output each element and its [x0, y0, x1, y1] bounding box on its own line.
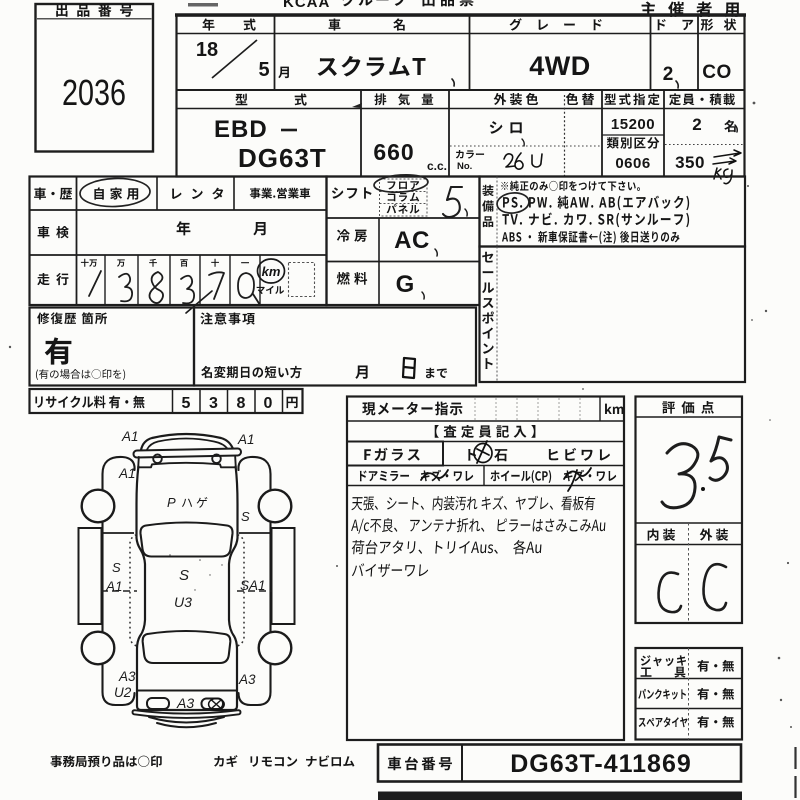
svg-text:G: G — [396, 271, 415, 298]
svg-text:S: S — [112, 560, 121, 575]
svg-text:A3: A3 — [238, 672, 256, 687]
svg-text:18: 18 — [196, 39, 218, 61]
svg-text:5: 5 — [258, 59, 269, 81]
svg-text:km: km — [262, 264, 281, 279]
svg-text:0606: 0606 — [615, 155, 650, 172]
svg-text:No.: No. — [457, 161, 472, 172]
svg-text:A3: A3 — [176, 695, 194, 711]
svg-text:A1: A1 — [118, 466, 136, 481]
svg-text:SA1: SA1 — [240, 578, 266, 593]
svg-text:A1: A1 — [105, 579, 123, 594]
svg-text:5: 5 — [182, 395, 191, 412]
svg-text:2: 2 — [692, 115, 701, 134]
svg-text:A1: A1 — [121, 429, 139, 444]
svg-text:EBD: EBD — [214, 116, 268, 143]
svg-text:c.c.: c.c. — [427, 159, 447, 173]
svg-text:660: 660 — [373, 139, 414, 165]
svg-text:U2: U2 — [114, 685, 132, 700]
svg-text:3: 3 — [209, 395, 218, 412]
svg-text:15200: 15200 — [611, 116, 655, 133]
svg-text:S: S — [241, 509, 250, 524]
svg-text:AC: AC — [394, 227, 430, 254]
svg-text:CO: CO — [702, 62, 732, 83]
svg-text:S: S — [179, 567, 189, 584]
svg-text:U3: U3 — [174, 594, 192, 610]
svg-text:DG63T: DG63T — [238, 143, 327, 173]
svg-text:2036: 2036 — [62, 72, 126, 113]
svg-text:4WD: 4WD — [529, 51, 591, 81]
svg-text:8: 8 — [237, 395, 246, 412]
svg-text:P: P — [167, 495, 176, 510]
svg-text:0: 0 — [264, 395, 273, 412]
svg-text:A3: A3 — [118, 669, 136, 684]
svg-text:DG63T-411869: DG63T-411869 — [510, 750, 692, 778]
svg-text:350: 350 — [675, 153, 705, 172]
svg-text:A1: A1 — [237, 432, 255, 447]
svg-text:KCAA: KCAA — [283, 0, 330, 11]
svg-text:2: 2 — [663, 64, 674, 85]
